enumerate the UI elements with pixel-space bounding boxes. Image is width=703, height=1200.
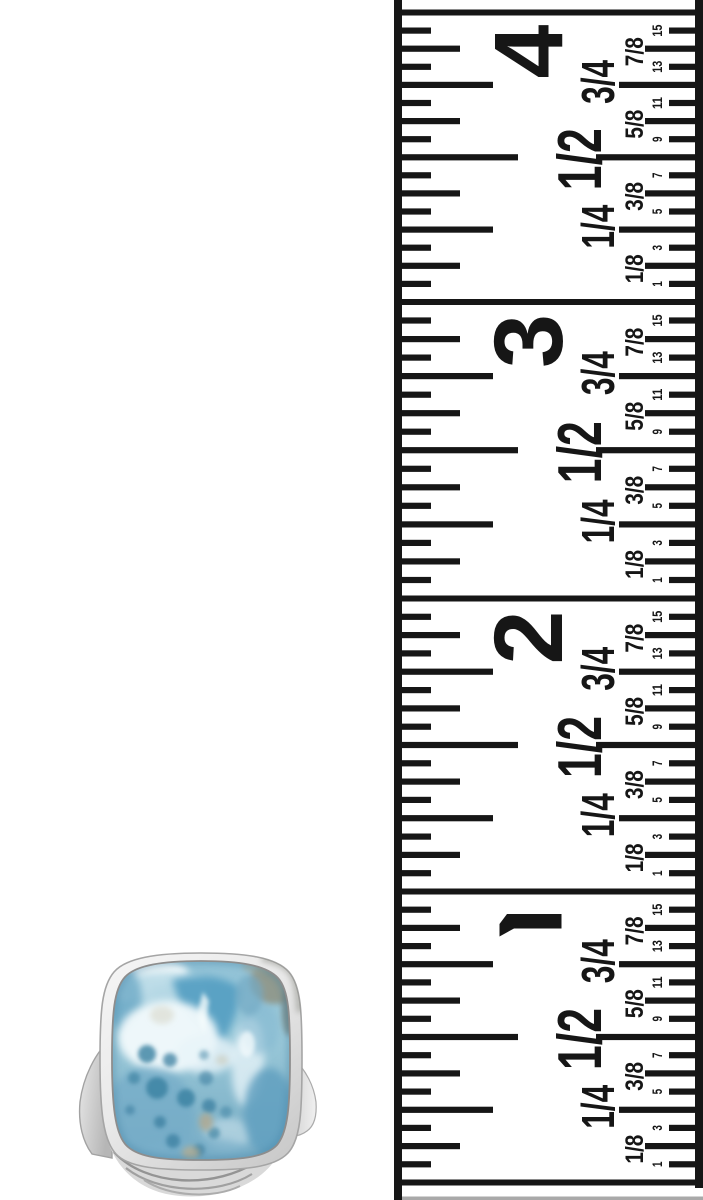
- svg-text:13: 13: [649, 351, 665, 363]
- svg-text:1/2: 1/2: [546, 716, 615, 778]
- svg-text:1/8: 1/8: [621, 254, 649, 283]
- svg-text:3/8: 3/8: [621, 770, 649, 799]
- svg-text:3: 3: [474, 314, 583, 368]
- svg-text:3: 3: [649, 834, 665, 840]
- svg-text:11: 11: [649, 389, 665, 401]
- svg-text:5/8: 5/8: [621, 697, 649, 726]
- svg-text:3/8: 3/8: [621, 476, 649, 505]
- svg-text:15: 15: [649, 24, 665, 36]
- svg-text:3: 3: [649, 1125, 665, 1131]
- svg-text:7/8: 7/8: [621, 328, 649, 357]
- svg-text:1: 1: [649, 870, 665, 876]
- svg-text:1/2: 1/2: [546, 1008, 615, 1070]
- svg-text:1/4: 1/4: [572, 793, 624, 837]
- svg-text:9: 9: [649, 724, 665, 730]
- svg-text:7: 7: [649, 1052, 665, 1058]
- svg-text:7/8: 7/8: [621, 916, 649, 945]
- svg-text:13: 13: [649, 647, 665, 659]
- svg-text:3/8: 3/8: [621, 182, 649, 211]
- svg-text:9: 9: [649, 136, 665, 142]
- svg-text:5/8: 5/8: [621, 989, 649, 1018]
- svg-text:7/8: 7/8: [621, 624, 649, 653]
- svg-text:1/2: 1/2: [546, 128, 615, 190]
- svg-text:2: 2: [474, 611, 583, 665]
- svg-text:4: 4: [474, 24, 583, 78]
- svg-text:1/4: 1/4: [572, 204, 624, 248]
- svg-text:3/4: 3/4: [572, 939, 624, 983]
- svg-text:1/2: 1/2: [546, 421, 615, 483]
- svg-text:1: 1: [649, 281, 665, 287]
- svg-text:11: 11: [649, 684, 665, 696]
- svg-text:9: 9: [649, 1016, 665, 1022]
- svg-text:13: 13: [649, 61, 665, 73]
- svg-text:5/8: 5/8: [621, 110, 649, 139]
- svg-text:3/4: 3/4: [572, 60, 624, 104]
- svg-text:1/8: 1/8: [621, 550, 649, 579]
- svg-text:3/4: 3/4: [572, 351, 624, 395]
- svg-text:5: 5: [649, 1089, 665, 1095]
- svg-text:3/4: 3/4: [572, 647, 624, 691]
- svg-text:5: 5: [649, 503, 665, 509]
- svg-text:3: 3: [649, 540, 665, 546]
- svg-text:7/8: 7/8: [621, 37, 649, 66]
- svg-text:7: 7: [649, 466, 665, 472]
- svg-text:9: 9: [649, 429, 665, 435]
- svg-text:7: 7: [649, 172, 665, 178]
- svg-text:11: 11: [649, 976, 665, 988]
- svg-text:15: 15: [649, 314, 665, 326]
- svg-text:3: 3: [649, 245, 665, 251]
- svg-text:3/8: 3/8: [621, 1062, 649, 1091]
- svg-text:15: 15: [649, 611, 665, 623]
- svg-text:5: 5: [649, 797, 665, 803]
- svg-text:1/8: 1/8: [621, 843, 649, 872]
- svg-text:1/8: 1/8: [621, 1135, 649, 1164]
- svg-text:5: 5: [649, 209, 665, 215]
- svg-text:15: 15: [649, 904, 665, 916]
- svg-text:1: 1: [649, 577, 665, 583]
- svg-text:11: 11: [649, 97, 665, 109]
- svg-text:13: 13: [649, 940, 665, 952]
- svg-text:1/4: 1/4: [572, 499, 624, 543]
- svg-text:5/8: 5/8: [621, 402, 649, 431]
- svg-text:1/4: 1/4: [572, 1085, 624, 1129]
- svg-text:1: 1: [649, 1161, 665, 1167]
- svg-text:7: 7: [649, 760, 665, 766]
